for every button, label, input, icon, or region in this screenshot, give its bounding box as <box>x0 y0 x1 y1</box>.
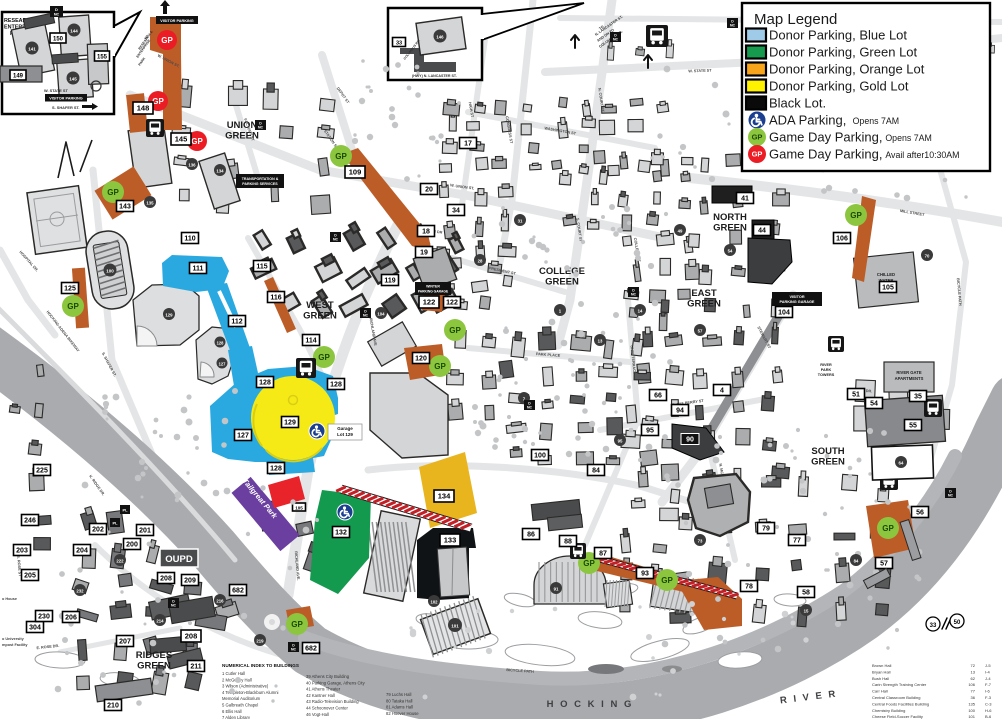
svg-text:GP: GP <box>752 150 763 159</box>
svg-text:EAST: EAST <box>691 288 717 299</box>
svg-text:122: 122 <box>446 300 458 307</box>
svg-text:GP: GP <box>191 137 203 146</box>
svg-text:MC: MC <box>258 126 264 130</box>
svg-text:216: 216 <box>216 598 224 603</box>
svg-text:219: 219 <box>256 638 264 643</box>
svg-text:81 Adams Hall: 81 Adams Hall <box>386 705 413 710</box>
svg-text:4: 4 <box>720 388 724 395</box>
svg-text:128: 128 <box>217 340 225 345</box>
svg-text:58: 58 <box>802 590 810 597</box>
svg-text:(HWY) N. LANCASTER ST.: (HWY) N. LANCASTER ST. <box>412 74 457 78</box>
svg-text:208: 208 <box>185 632 198 641</box>
svg-text:Donor Parking, Blue Lot: Donor Parking, Blue Lot <box>769 28 907 43</box>
svg-text:105: 105 <box>295 506 303 511</box>
svg-text:13: 13 <box>598 338 603 343</box>
svg-text:54: 54 <box>728 248 733 253</box>
svg-text:D: D <box>55 7 58 12</box>
svg-text:PL: PL <box>122 508 128 513</box>
svg-text:GP: GP <box>583 559 595 568</box>
svg-text:1 Cutler Hall: 1 Cutler Hall <box>222 671 245 676</box>
svg-text:Donor Parking, Orange Lot: Donor Parking, Orange Lot <box>769 62 925 77</box>
svg-text:84: 84 <box>592 468 600 475</box>
svg-text:46 Vogt-Hall: 46 Vogt-Hall <box>306 712 329 717</box>
svg-text:105: 105 <box>882 285 894 292</box>
svg-text:91: 91 <box>554 586 559 591</box>
svg-text:104: 104 <box>377 311 385 316</box>
svg-text:NORTH: NORTH <box>713 212 747 223</box>
svg-text:PARKING SERVICES: PARKING SERVICES <box>242 182 278 186</box>
svg-text:MC: MC <box>527 406 533 410</box>
svg-text:128: 128 <box>270 466 282 473</box>
svg-text:GP: GP <box>152 97 164 106</box>
svg-text:31: 31 <box>518 218 523 223</box>
svg-text:Bush Hall: Bush Hall <box>872 676 889 681</box>
svg-text:PARK: PARK <box>821 368 832 372</box>
svg-text:82 Hoover House: 82 Hoover House <box>386 711 419 716</box>
svg-text:GP: GP <box>291 620 303 629</box>
svg-text:211: 211 <box>190 664 201 671</box>
svg-text:Central Foods Facilities Build: Central Foods Facilities Building <box>872 701 929 706</box>
svg-text:129: 129 <box>284 420 296 427</box>
svg-text:18: 18 <box>422 229 430 236</box>
svg-text:GREEN: GREEN <box>687 299 721 310</box>
svg-text:S. SHAFER ST.: S. SHAFER ST. <box>52 105 79 110</box>
svg-text:110: 110 <box>184 236 195 243</box>
svg-text:W. STATE ST: W. STATE ST <box>688 69 712 74</box>
svg-text:120: 120 <box>415 356 427 363</box>
svg-text:146: 146 <box>436 35 444 40</box>
svg-text:210: 210 <box>107 703 119 710</box>
svg-text:132: 132 <box>335 530 347 537</box>
svg-text:101: 101 <box>968 714 975 719</box>
svg-text:VISITOR: VISITOR <box>789 295 804 299</box>
svg-text:35: 35 <box>914 394 922 401</box>
svg-text:201: 201 <box>139 528 151 535</box>
svg-text:66: 66 <box>654 393 662 400</box>
svg-text:77: 77 <box>971 689 976 694</box>
svg-text:MC: MC <box>363 314 369 318</box>
svg-text:100: 100 <box>106 269 114 274</box>
svg-text:MC: MC <box>171 604 177 608</box>
svg-text:NUMERICAL INDEX TO BUILDINGS: NUMERICAL INDEX TO BUILDINGS <box>222 663 299 668</box>
svg-text:I-4: I-4 <box>985 669 990 674</box>
svg-text:28: 28 <box>478 258 483 263</box>
svg-text:86: 86 <box>527 532 535 539</box>
svg-text:J-4: J-4 <box>985 676 991 681</box>
svg-text:72: 72 <box>971 663 976 668</box>
svg-text:119: 119 <box>384 278 395 285</box>
svg-text:Opens 7AM: Opens 7AM <box>885 133 931 143</box>
svg-text:80 Tataka Hall: 80 Tataka Hall <box>386 698 413 703</box>
svg-text:50: 50 <box>954 620 961 626</box>
svg-text:43 Radio-Television Building: 43 Radio-Television Building <box>306 699 359 704</box>
svg-text:42 Kantner Hall: 42 Kantner Hall <box>306 693 335 698</box>
svg-text:207: 207 <box>119 639 131 646</box>
svg-text:54: 54 <box>870 401 878 408</box>
svg-text:143: 143 <box>119 204 131 211</box>
svg-text:GREEN: GREEN <box>545 277 579 288</box>
svg-text:Lot 129: Lot 129 <box>337 432 353 437</box>
svg-text:UNION: UNION <box>227 120 258 131</box>
svg-text:230: 230 <box>38 614 50 621</box>
svg-text:Donor Parking, Green Lot: Donor Parking, Green Lot <box>769 45 918 60</box>
svg-text:144: 144 <box>70 29 78 34</box>
svg-text:Brown Hall: Brown Hall <box>872 663 891 668</box>
svg-text:155: 155 <box>97 55 108 61</box>
svg-text:122: 122 <box>423 298 436 307</box>
svg-text:246: 246 <box>24 518 36 525</box>
svg-text:34: 34 <box>452 208 460 215</box>
svg-text:MC: MC <box>54 13 60 17</box>
svg-text:RIDGES: RIDGES <box>136 650 172 661</box>
svg-text:57: 57 <box>880 561 888 568</box>
svg-text:o University: o University <box>2 637 25 641</box>
svg-text:70: 70 <box>925 253 930 258</box>
svg-text:C-3: C-3 <box>985 701 992 706</box>
svg-text:13: 13 <box>971 669 976 674</box>
svg-text:55: 55 <box>909 423 917 430</box>
svg-text:MC: MC <box>948 494 954 498</box>
svg-text:F-3: F-3 <box>985 695 992 700</box>
svg-text:682: 682 <box>232 588 244 595</box>
svg-text:F-7: F-7 <box>985 682 992 687</box>
svg-text:Avail after10:30AM: Avail after10:30AM <box>885 150 959 160</box>
svg-text:208: 208 <box>160 576 172 583</box>
svg-text:102: 102 <box>431 599 439 604</box>
svg-text:77: 77 <box>793 538 801 545</box>
svg-text:W. STATE ST: W. STATE ST <box>44 88 68 93</box>
svg-text:GP: GP <box>318 353 330 362</box>
svg-text:64: 64 <box>899 460 904 465</box>
svg-text:Donor Parking, Gold Lot: Donor Parking, Gold Lot <box>769 79 909 94</box>
svg-text:GP: GP <box>67 302 79 311</box>
svg-text:111: 111 <box>193 266 204 273</box>
svg-text:141: 141 <box>28 47 36 52</box>
svg-text:79: 79 <box>762 526 770 533</box>
svg-text:128: 128 <box>259 380 271 387</box>
svg-text:VISITOR PARKING: VISITOR PARKING <box>49 97 82 101</box>
svg-text:136: 136 <box>188 162 196 167</box>
svg-text:204: 204 <box>76 548 88 555</box>
svg-text:GP: GP <box>449 326 461 335</box>
svg-text:TOWERS: TOWERS <box>818 373 835 377</box>
svg-text:114: 114 <box>305 338 316 345</box>
svg-text:87: 87 <box>599 551 607 558</box>
svg-text:RIVER: RIVER <box>820 363 832 367</box>
svg-text:129: 129 <box>165 312 173 317</box>
svg-text:15: 15 <box>804 608 809 613</box>
svg-text:5 Galbreath Chapel: 5 Galbreath Chapel <box>222 703 258 708</box>
svg-text:145: 145 <box>175 135 188 144</box>
svg-text:101: 101 <box>451 624 459 629</box>
svg-text:Chemistry Building: Chemistry Building <box>872 708 905 713</box>
svg-text:33: 33 <box>396 41 402 47</box>
svg-text:106: 106 <box>836 236 848 243</box>
svg-text:88: 88 <box>564 539 572 546</box>
svg-text:GP: GP <box>335 152 347 161</box>
svg-text:127: 127 <box>219 361 227 366</box>
svg-text:GP: GP <box>850 211 862 220</box>
svg-text:GREEN: GREEN <box>137 661 171 672</box>
svg-text:Game Day Parking,: Game Day Parking, <box>769 130 882 145</box>
svg-text:206: 206 <box>65 615 77 622</box>
svg-text:133: 133 <box>444 536 457 545</box>
svg-text:Bryan Hall: Bryan Hall <box>872 669 891 674</box>
svg-text:14: 14 <box>638 308 643 313</box>
svg-text:135: 135 <box>968 701 975 706</box>
svg-text:Game Day Parking,: Game Day Parking, <box>769 147 882 162</box>
svg-text:41: 41 <box>741 196 749 203</box>
svg-text:Memorial Auditorium: Memorial Auditorium <box>222 696 261 701</box>
svg-text:51: 51 <box>852 392 860 399</box>
svg-text:GREEN: GREEN <box>303 311 337 322</box>
svg-text:56: 56 <box>916 510 924 517</box>
svg-text:40 Parking Garage, Athens Cit: 40 Parking Garage, Athens City <box>306 680 366 685</box>
svg-text:MC: MC <box>333 238 339 242</box>
svg-text:62: 62 <box>971 676 976 681</box>
svg-text:Central Classroom Building: Central Classroom Building <box>872 695 920 700</box>
svg-text:MC: MC <box>613 38 619 42</box>
svg-text:150: 150 <box>53 37 64 43</box>
svg-text:33: 33 <box>930 623 937 629</box>
svg-text:MC: MC <box>631 293 637 297</box>
svg-text:100: 100 <box>534 453 546 460</box>
svg-text:o House: o House <box>2 597 17 601</box>
svg-text:79 Luchs Hall: 79 Luchs Hall <box>386 692 411 697</box>
svg-text:GP: GP <box>434 362 446 371</box>
svg-text:95: 95 <box>646 428 654 435</box>
svg-text:19: 19 <box>420 250 428 257</box>
svg-text:Map Legend: Map Legend <box>754 11 837 28</box>
svg-text:232: 232 <box>76 588 84 593</box>
svg-text:106: 106 <box>968 682 975 687</box>
svg-text:36: 36 <box>971 695 976 700</box>
svg-text:Black Lot.: Black Lot. <box>769 96 826 111</box>
svg-text:149: 149 <box>13 74 24 80</box>
svg-text:94: 94 <box>676 408 684 415</box>
svg-text:225: 225 <box>36 468 48 475</box>
svg-text:135: 135 <box>146 200 154 205</box>
svg-text:205: 205 <box>24 573 36 580</box>
svg-text:128: 128 <box>330 382 342 389</box>
svg-text:RIVER GATE: RIVER GATE <box>896 370 921 375</box>
svg-text:B-6: B-6 <box>985 714 992 719</box>
svg-text:90: 90 <box>686 437 694 444</box>
svg-text:PL: PL <box>112 521 118 526</box>
svg-text:116: 116 <box>270 295 281 302</box>
svg-text:ADA Parking,: ADA Parking, <box>769 113 846 128</box>
svg-text:39 Athens City Building: 39 Athens City Building <box>306 674 350 679</box>
svg-text:682: 682 <box>305 646 317 653</box>
svg-text:100: 100 <box>968 708 975 713</box>
svg-text:WEST: WEST <box>306 300 334 311</box>
svg-text:PARKING GARAGE: PARKING GARAGE <box>780 300 815 304</box>
svg-text:OUPD: OUPD <box>165 554 193 565</box>
svg-text:214: 214 <box>156 618 164 623</box>
svg-text:73: 73 <box>698 538 703 543</box>
svg-text:44: 44 <box>758 228 766 235</box>
svg-text:49: 49 <box>678 228 683 233</box>
svg-text:3 Wilson (Administrative): 3 Wilson (Administrative) <box>222 684 269 689</box>
svg-text:84: 84 <box>854 558 859 563</box>
svg-text:134: 134 <box>438 492 451 501</box>
svg-text:44 Schoonover Center: 44 Schoonover Center <box>306 706 349 711</box>
svg-text:202: 202 <box>92 527 104 534</box>
svg-text:127: 127 <box>237 433 249 440</box>
svg-text:145: 145 <box>69 77 77 82</box>
svg-text:125: 125 <box>64 286 76 293</box>
svg-text:41 Athens Theater: 41 Athens Theater <box>306 687 341 692</box>
svg-text:APARTMENTS: APARTMENTS <box>895 376 924 381</box>
svg-text:7 Alden Library: 7 Alden Library <box>222 715 251 719</box>
svg-text:95: 95 <box>618 438 623 443</box>
svg-text:203: 203 <box>16 548 28 555</box>
svg-text:115: 115 <box>256 264 267 271</box>
svg-text:WINTER: WINTER <box>426 285 440 289</box>
svg-text:200: 200 <box>126 542 138 549</box>
svg-text:20: 20 <box>425 187 433 194</box>
svg-text:GP: GP <box>107 188 119 197</box>
svg-text:57: 57 <box>698 328 703 333</box>
svg-text:mpost Facility: mpost Facility <box>2 643 28 647</box>
svg-text:Cheese Field-Soccer Facility: Cheese Field-Soccer Facility <box>872 714 923 719</box>
svg-text:304: 304 <box>29 625 41 632</box>
svg-text:VISITOR PARKING: VISITOR PARKING <box>160 19 193 23</box>
svg-text:MC: MC <box>291 648 297 652</box>
svg-text:H O C K I N G: H O C K I N G <box>547 699 634 710</box>
svg-text:112: 112 <box>231 319 242 326</box>
svg-text:GREEN: GREEN <box>713 223 747 234</box>
svg-text:GP: GP <box>752 133 763 142</box>
svg-text:I-6: I-6 <box>985 689 990 694</box>
svg-text:148: 148 <box>137 104 150 113</box>
svg-text:CHILLED: CHILLED <box>877 272 895 277</box>
svg-text:Carr Hall: Carr Hall <box>872 689 888 694</box>
svg-text:MC: MC <box>730 24 736 28</box>
svg-text:GP: GP <box>661 576 673 585</box>
svg-text:Carin Strength Training Center: Carin Strength Training Center <box>872 682 927 687</box>
svg-text:PARKING GARAGE: PARKING GARAGE <box>418 290 449 294</box>
svg-text:GP: GP <box>882 524 894 533</box>
svg-text:93: 93 <box>641 571 649 578</box>
svg-text:134: 134 <box>216 168 224 173</box>
svg-text:17: 17 <box>464 141 472 148</box>
svg-text:222: 222 <box>116 558 124 563</box>
svg-text:J-5: J-5 <box>985 663 991 668</box>
svg-text:Garage: Garage <box>337 426 353 431</box>
svg-text:78: 78 <box>745 584 753 591</box>
svg-text:209: 209 <box>184 578 196 585</box>
svg-text:TRANSPORTATION &: TRANSPORTATION & <box>242 177 279 181</box>
svg-text:104: 104 <box>778 310 790 317</box>
svg-text:109: 109 <box>349 168 362 177</box>
svg-text:GP: GP <box>161 36 173 45</box>
svg-text:6 Ellis Hall: 6 Ellis Hall <box>222 709 242 714</box>
svg-text:Opens 7AM: Opens 7AM <box>853 116 899 126</box>
svg-text:H-6: H-6 <box>985 708 992 713</box>
